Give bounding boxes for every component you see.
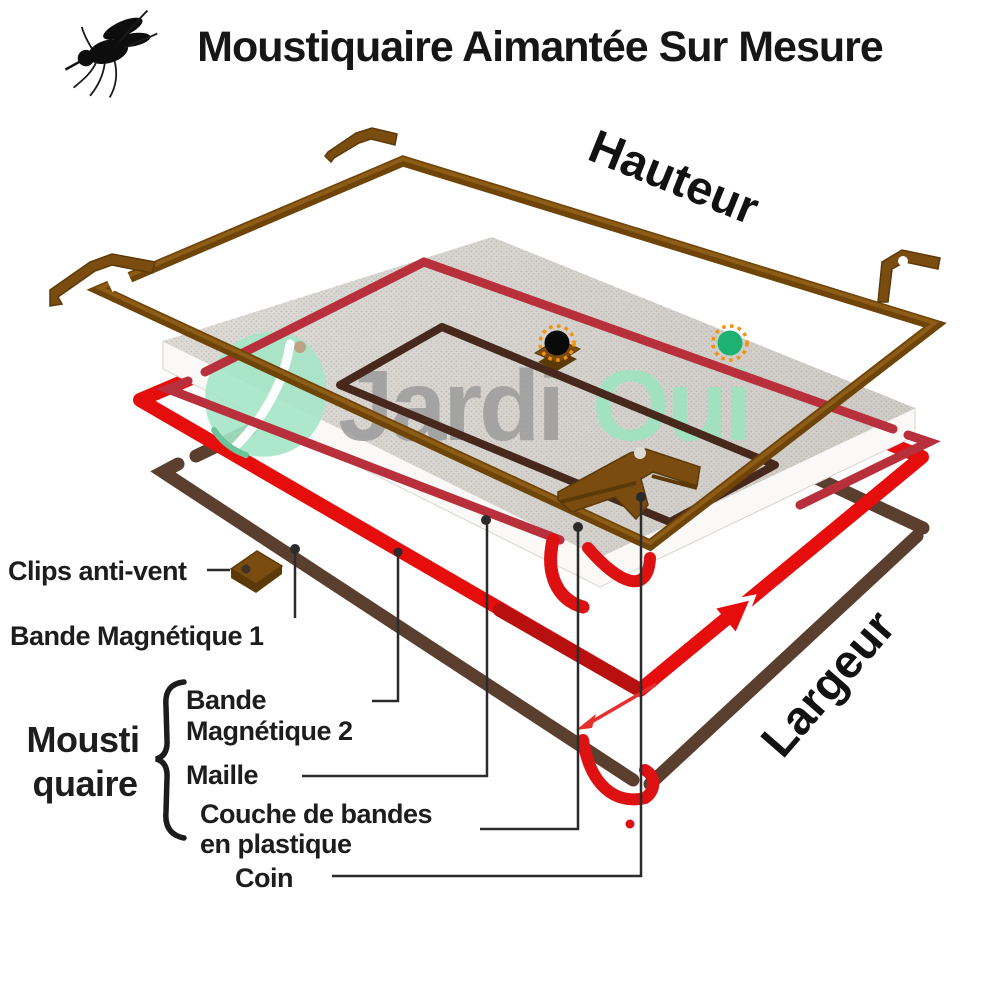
callout-band1-dot: [290, 544, 300, 554]
corner-bracket-right-notch: [898, 256, 908, 266]
header: Moustiquaire Aimantée Sur Mesure: [65, 11, 882, 98]
label-couche-line2: en plastique: [200, 829, 352, 859]
ribbon-fleck: [626, 820, 635, 829]
label-couche-line1: Couche de bandes: [200, 799, 432, 829]
callout-plastic: [480, 529, 578, 829]
clip-hole: [242, 565, 251, 574]
mosquito-icon: [65, 11, 157, 98]
label-clips-anti-vent: Clips anti-vent: [8, 556, 187, 586]
height-dimension-label: Hauteur: [582, 119, 767, 235]
corner-bracket-top: [325, 128, 397, 162]
black-hotspot-dot[interactable]: [545, 331, 570, 356]
label-moustiquaire-line1: Mousti: [27, 719, 140, 760]
red-band-shadow: [500, 610, 636, 688]
clip-anti-vent: [231, 551, 282, 593]
leaf-accent: [294, 341, 306, 353]
callout-band2-dot: [394, 548, 403, 557]
brace: [156, 682, 184, 838]
green-hotspot-dot[interactable]: [718, 331, 743, 356]
label-bande-2-line2: Magnétique 2: [186, 716, 353, 746]
callout-mesh-dot: [481, 515, 491, 525]
label-bande-2-line1: Bande: [186, 685, 267, 715]
label-bande-magnetique-1: Bande Magnétique 1: [10, 621, 264, 651]
corner-bracket-left: [50, 254, 155, 306]
thin-red-arrow-line: [588, 685, 655, 724]
callout-plastic-dot: [573, 522, 583, 532]
infographic-page: Jardi Oui: [0, 0, 1000, 1000]
page-title: Moustiquaire Aimantée Sur Mesure: [197, 23, 883, 71]
mosquito-net-diagram: Jardi Oui: [0, 0, 1000, 1000]
label-moustiquaire-line2: quaire: [32, 763, 137, 804]
label-maille: Maille: [186, 760, 259, 790]
callout-corner-dot: [636, 492, 646, 502]
corner-piece-notch: [634, 447, 646, 459]
corner-bracket-right: [878, 250, 940, 302]
label-coin: Coin: [235, 863, 293, 893]
